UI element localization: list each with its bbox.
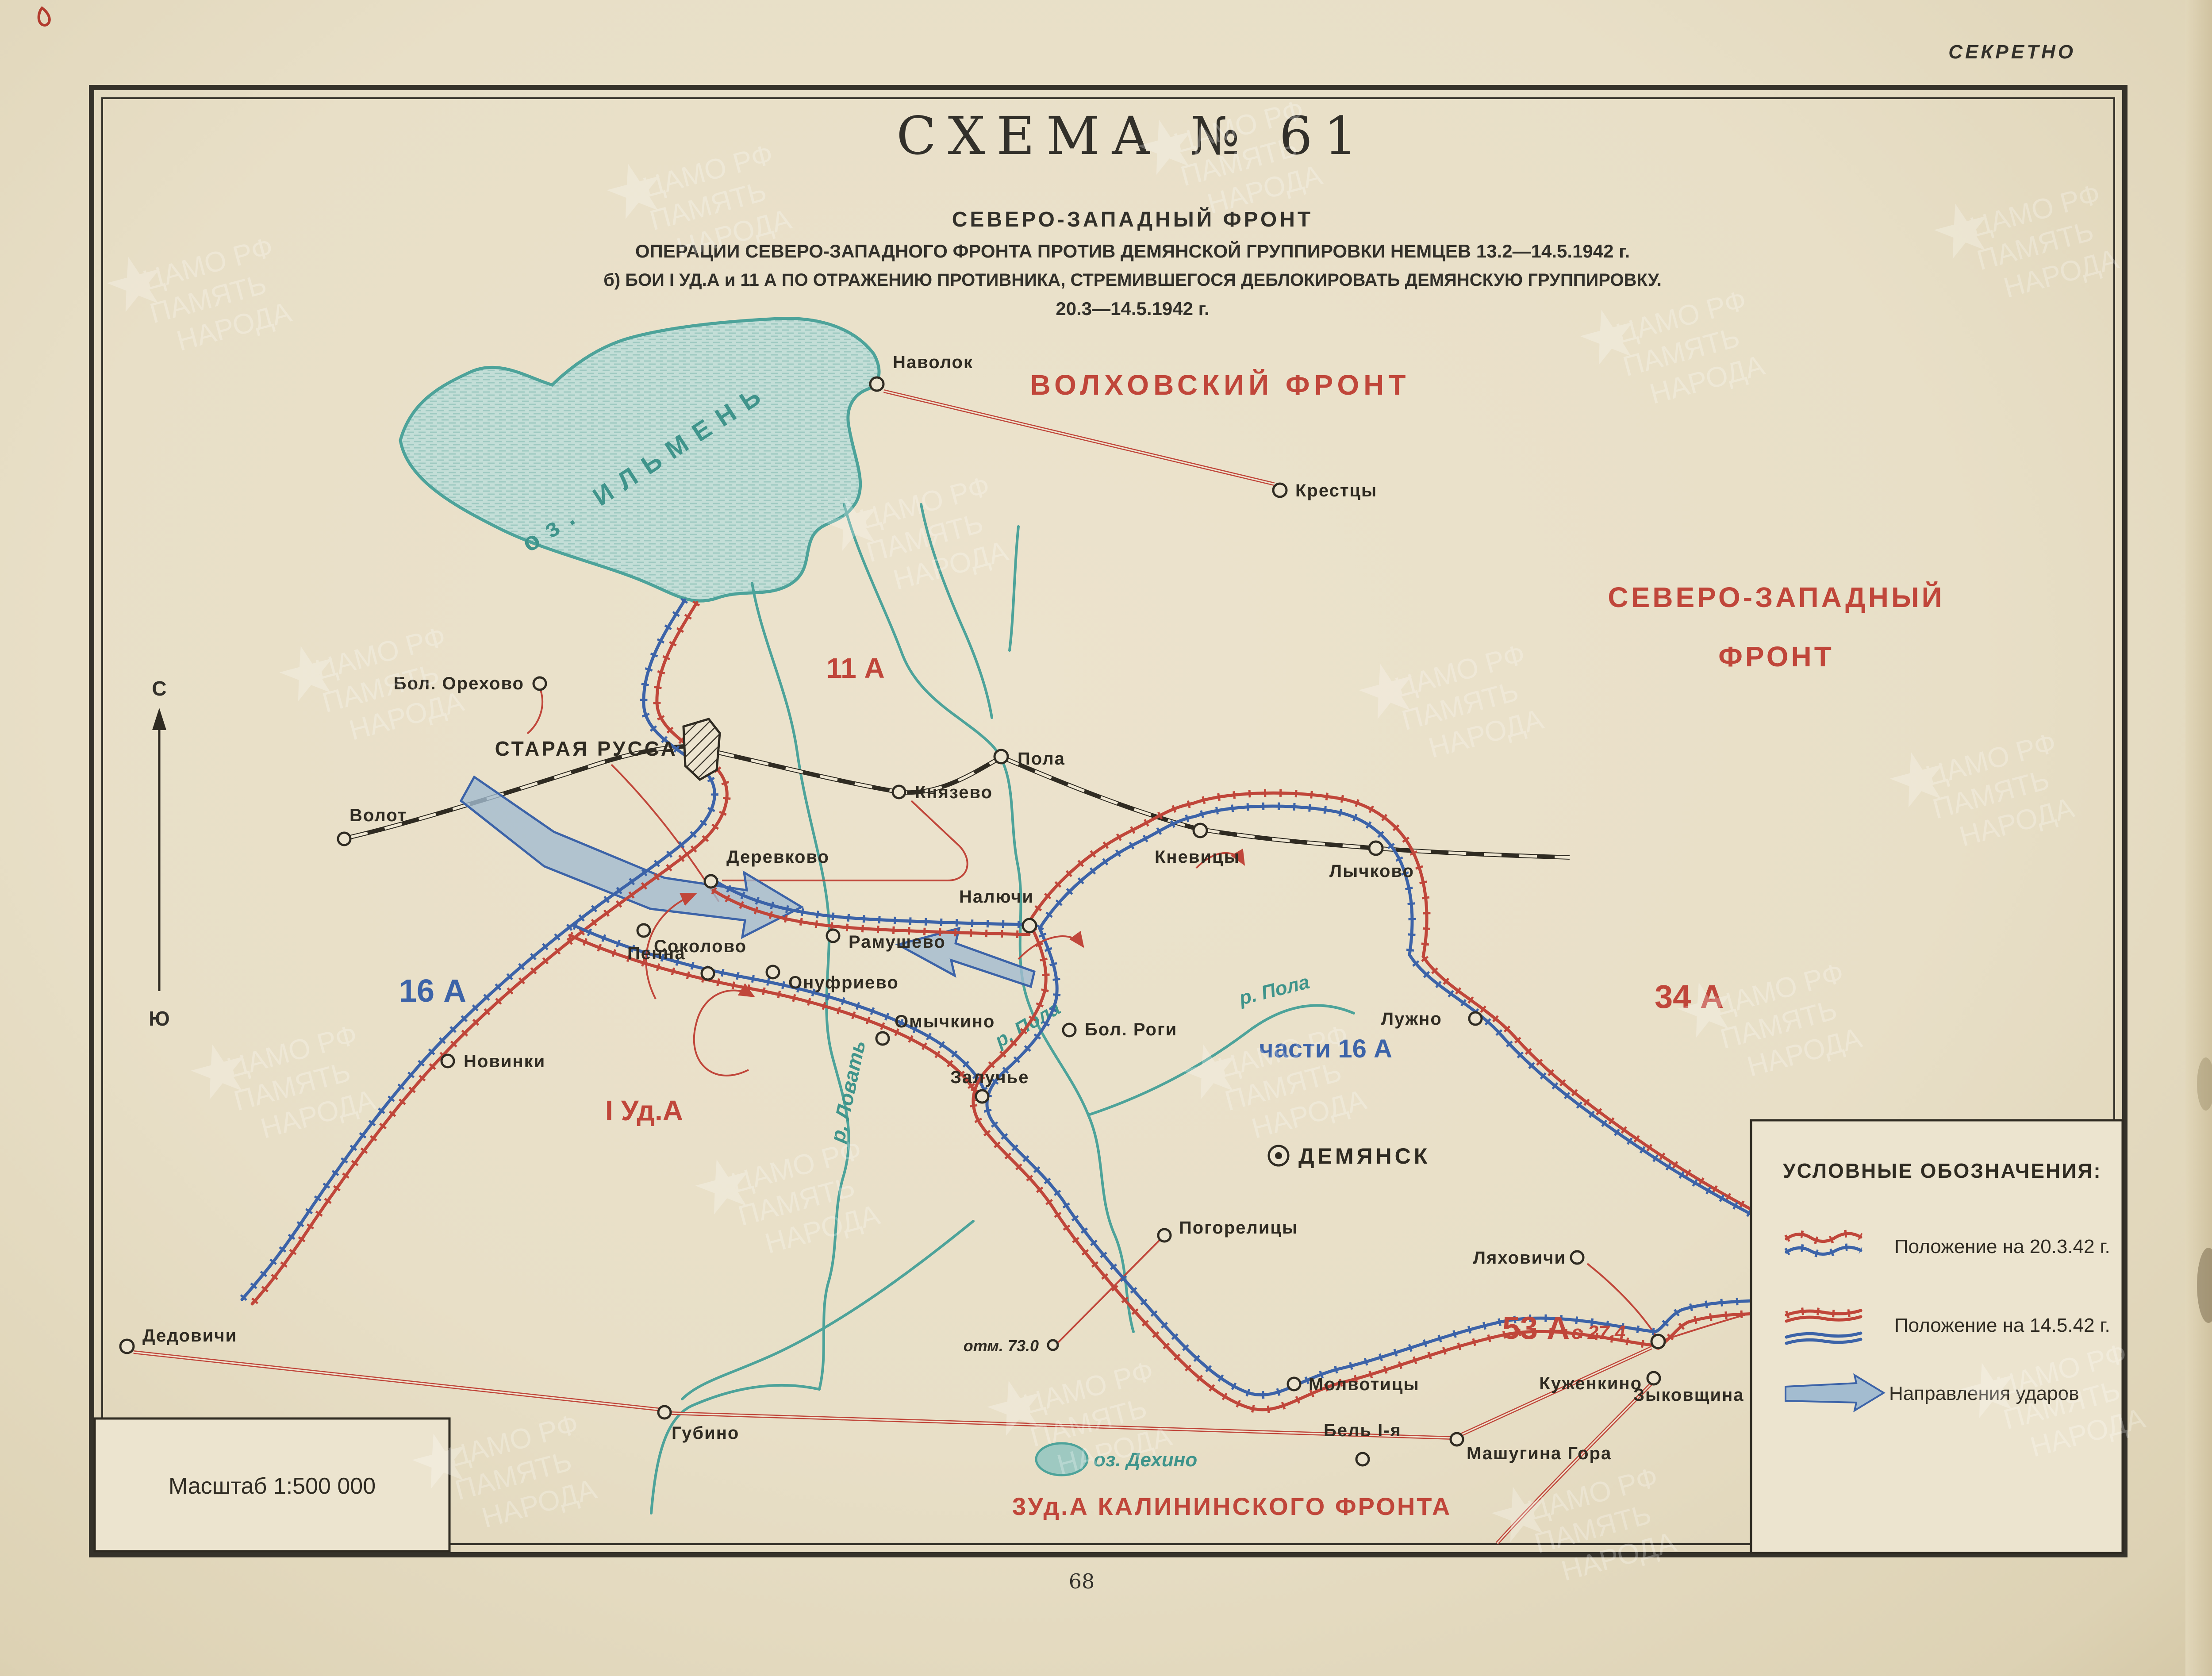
town-label: Погорелицы	[1179, 1218, 1298, 1238]
compass-arrowhead	[152, 708, 166, 730]
legend-title: УСЛОВНЫЕ ОБОЗНАЧЕНИЯ:	[1783, 1159, 2102, 1182]
town-label: Князево	[915, 783, 993, 802]
front-demyansk-pocket	[973, 793, 1842, 1410]
river-pola-label2: р. Пола	[1237, 971, 1312, 1010]
lake-ilmen: оз. ИЛЬМЕНЬ	[400, 319, 879, 601]
town-marker	[120, 1340, 134, 1353]
town-marker	[767, 966, 779, 978]
town-marker	[1158, 1229, 1171, 1242]
town-label: Лужно	[1381, 1009, 1442, 1029]
town-marker	[893, 786, 905, 798]
town-label: Ляховичи	[1473, 1248, 1566, 1268]
army-label-11a: 11 А	[826, 652, 885, 684]
river-delta-branch2	[1010, 527, 1018, 650]
town-marker	[1023, 919, 1036, 932]
town-label: Волот	[349, 806, 407, 825]
town-marker	[705, 875, 717, 888]
strike-arrows	[461, 777, 1034, 987]
compass-south: Ю	[149, 1007, 169, 1030]
town-marker	[637, 924, 650, 937]
town-marker	[1194, 824, 1207, 837]
subtitle-line2: б) БОИ I УД.А и 11 А ПО ОТРАЖЕНИЮ ПРОТИВ…	[603, 270, 1662, 290]
town-label: Налючи	[959, 887, 1034, 907]
subtitle-line1: ОПЕРАЦИИ СЕВЕРО-ЗАПАДНОГО ФРОНТА ПРОТИВ …	[635, 240, 1630, 261]
army-label-16a: 16 А	[399, 973, 466, 1009]
town-marker	[1273, 484, 1286, 497]
town-label: Залучье	[950, 1068, 1029, 1087]
town-label: Лычково	[1329, 861, 1414, 881]
town-marker	[1288, 1378, 1300, 1390]
legend-item-label: Положение на 20.3.42 г.	[1894, 1236, 2110, 1257]
town-marker	[876, 1032, 889, 1045]
town-marker	[827, 930, 839, 942]
town-label: Дедовичи	[142, 1326, 237, 1345]
town-marker	[338, 833, 350, 845]
secret-stamp: СЕКРЕТНО	[1948, 41, 2076, 63]
city-marker-demyansk	[1269, 1146, 1288, 1165]
city-label-demyansk: ДЕМЯНСК	[1298, 1144, 1430, 1169]
subtitle-line3: 20.3—14.5.1942 г.	[1056, 298, 1209, 319]
front-label-kalinin: 3Уд.А КАЛИНИНСКОГО ФРОНТА	[1012, 1492, 1452, 1520]
scan-ink-mark	[39, 8, 50, 25]
town-label: Онуфриево	[788, 973, 899, 992]
town-marker	[1647, 1372, 1660, 1384]
town-marker	[1356, 1453, 1369, 1465]
page-number: 68	[1069, 1569, 1095, 1593]
town-label: Зыковщина	[1633, 1385, 1744, 1405]
river-lovat-lower	[651, 1385, 819, 1513]
compass-north: С	[152, 677, 166, 700]
front-label-volkhov: ВОЛХОВСКИЙ ФРОНТ	[1030, 369, 1410, 401]
town-marker	[702, 967, 714, 980]
town-label: Бель I-я	[1324, 1421, 1402, 1440]
town-label: Омычкино	[895, 1012, 995, 1031]
river-pola	[844, 504, 1133, 1332]
page-edge	[2185, 0, 2212, 1676]
town-marker	[1469, 1012, 1482, 1025]
town-label: Крестцы	[1295, 481, 1377, 500]
army-label-1uda: I Уд.А	[605, 1095, 683, 1126]
army-label-53a-date: с 27.4	[1571, 1322, 1625, 1343]
height-label: отм. 73.0	[964, 1337, 1039, 1355]
legend: УСЛОВНЫЕ ОБОЗНАЧЕНИЯ: Положение на 20.3.…	[1751, 1120, 2123, 1553]
town-label: Новинки	[464, 1052, 545, 1071]
river-stream	[682, 1221, 973, 1399]
town-label: Машугина Гора	[1467, 1444, 1612, 1463]
front-title: СЕВЕРО-ЗАПАДНЫЙ ФРОНТ	[952, 207, 1313, 231]
town-label: Деревково	[726, 847, 829, 867]
town-marker	[1369, 842, 1382, 855]
town-label: Куженкино	[1539, 1374, 1642, 1393]
map-sheet: ЦАМО РФ ПАМЯТЬ НАРОДА СЕКРЕТНО 68 СХЕМА …	[0, 0, 2212, 1676]
town-label: Губино	[672, 1423, 739, 1443]
town-marker	[1063, 1024, 1075, 1036]
town-marker	[442, 1055, 454, 1067]
rivers: р. Ловать р. Пола р. Пола оз. Дехино	[651, 504, 1354, 1513]
town-marker	[995, 750, 1008, 763]
town-label: Бол. Роги	[1085, 1020, 1177, 1039]
town-marker	[534, 677, 546, 690]
legend-box	[1751, 1120, 2123, 1553]
scale-label: Масштаб 1:500 000	[169, 1473, 376, 1499]
historical-map-svg: ЦАМО РФ ПАМЯТЬ НАРОДА СЕКРЕТНО 68 СХЕМА …	[0, 0, 2212, 1676]
town-label: Соколово	[654, 937, 747, 956]
front-label-nw-2: ФРОНТ	[1718, 641, 1834, 673]
town-marker	[1571, 1251, 1583, 1264]
town-marker	[1651, 1335, 1665, 1348]
town-label: Рамушево	[849, 932, 946, 952]
town-label: Наволок	[893, 353, 973, 372]
city-staraya-russa: СТАРАЯ РУССА	[495, 719, 720, 780]
height-marker	[1048, 1340, 1058, 1350]
town-marker	[976, 1090, 988, 1103]
legend-item-label: Положение на 14.5.42 г.	[1894, 1315, 2110, 1336]
town-label: Пола	[1018, 749, 1065, 769]
town-label: Молвотицы	[1309, 1375, 1420, 1394]
scale-box: Масштаб 1:500 000	[95, 1418, 449, 1551]
front-label-nw-1: СЕВЕРО-ЗАПАДНЫЙ	[1608, 581, 1944, 613]
compass: С Ю	[149, 677, 169, 1030]
town-marker	[658, 1406, 671, 1418]
town-label-staraya-russa: СТАРАЯ РУССА	[495, 737, 678, 760]
army-label-53a: 53 А	[1502, 1311, 1570, 1346]
town-label: Кневицы	[1155, 847, 1240, 867]
town-marker	[870, 377, 883, 391]
town-marker	[1451, 1433, 1463, 1445]
